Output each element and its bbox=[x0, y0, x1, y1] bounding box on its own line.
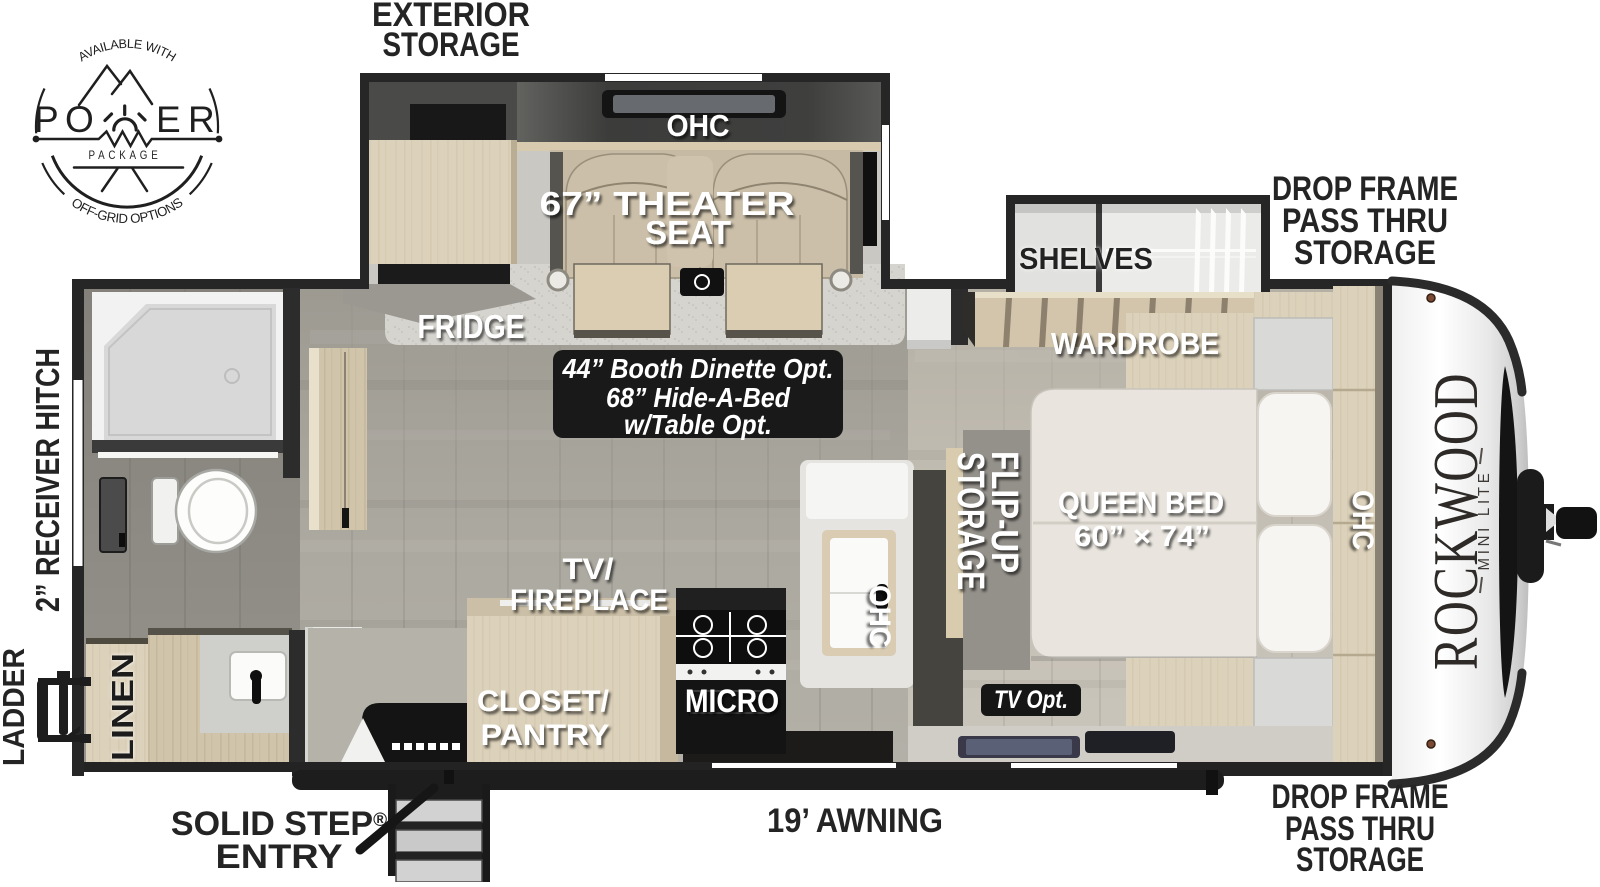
svg-text:2” RECEIVER HITCH: 2” RECEIVER HITCH bbox=[29, 348, 66, 612]
svg-text:TV/: TV/ bbox=[563, 553, 615, 586]
svg-text:OHC: OHC bbox=[1346, 490, 1379, 550]
svg-text:TV Opt.: TV Opt. bbox=[994, 686, 1068, 714]
svg-text:MICRO: MICRO bbox=[685, 683, 779, 719]
svg-text:OHC: OHC bbox=[863, 585, 896, 647]
svg-text:ENTRY: ENTRY bbox=[216, 838, 343, 876]
svg-text:O: O bbox=[65, 99, 94, 140]
svg-text:OHC: OHC bbox=[667, 108, 730, 143]
svg-text:P: P bbox=[34, 99, 59, 140]
svg-text:STORAGE: STORAGE bbox=[1296, 841, 1424, 879]
svg-text:w/Table Opt.: w/Table Opt. bbox=[624, 409, 772, 440]
svg-text:FRIDGE: FRIDGE bbox=[418, 308, 525, 345]
svg-text:19’ AWNING: 19’ AWNING bbox=[767, 802, 943, 840]
svg-text:CLOSET/: CLOSET/ bbox=[477, 685, 610, 718]
svg-text:PACKAGE: PACKAGE bbox=[89, 148, 162, 162]
svg-text:STORAGE: STORAGE bbox=[383, 26, 520, 64]
svg-text:MINI LITE: MINI LITE bbox=[1476, 470, 1493, 571]
svg-text:SHELVES: SHELVES bbox=[1019, 241, 1153, 276]
svg-text:STORAGE: STORAGE bbox=[1294, 234, 1436, 272]
svg-text:PANTRY: PANTRY bbox=[481, 719, 610, 752]
svg-text:LADDER: LADDER bbox=[0, 648, 31, 766]
svg-text:LINEN: LINEN bbox=[105, 653, 140, 761]
svg-text:SEAT: SEAT bbox=[645, 214, 731, 251]
svg-text:QUEEN BED: QUEEN BED bbox=[1058, 485, 1224, 520]
svg-text:E: E bbox=[156, 99, 181, 140]
svg-text:60” × 74”: 60” × 74” bbox=[1074, 521, 1210, 553]
svg-text:R: R bbox=[188, 99, 215, 140]
svg-text:44” Booth Dinette Opt.: 44” Booth Dinette Opt. bbox=[562, 353, 834, 384]
svg-text:WARDROBE: WARDROBE bbox=[1051, 326, 1219, 361]
svg-text:FIREPLACE: FIREPLACE bbox=[510, 584, 668, 617]
svg-text:STORAGE: STORAGE bbox=[949, 452, 991, 590]
